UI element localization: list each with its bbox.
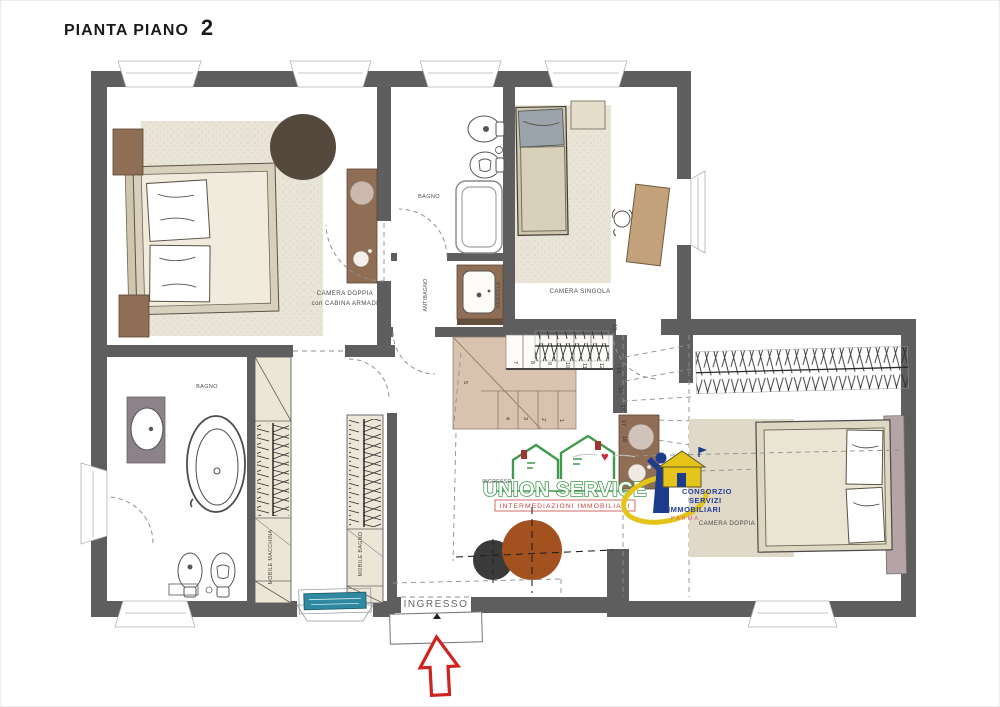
label-bagno-top: BAGNO bbox=[418, 194, 440, 200]
nightstand bbox=[571, 101, 605, 129]
teal-cabinet bbox=[297, 588, 373, 621]
entrance-arrow-icon bbox=[419, 636, 460, 696]
window-icon bbox=[420, 61, 501, 87]
floor-plan-page: PIANTA PIANO 2 bbox=[0, 0, 1000, 707]
wardrobe-strip-right bbox=[347, 415, 383, 603]
consorzio-line1: CONSORZIO bbox=[682, 487, 732, 496]
round-pouf bbox=[270, 114, 336, 180]
toilet-icon bbox=[470, 152, 504, 178]
step-number: 10 bbox=[564, 362, 570, 368]
step-number: 1 bbox=[558, 419, 564, 422]
nightstand bbox=[119, 295, 149, 337]
step-number: 5 bbox=[462, 381, 468, 384]
step-number: 3 bbox=[522, 417, 528, 420]
label-antibagno: ANTIBAGNO bbox=[423, 278, 429, 311]
window-icon bbox=[118, 61, 201, 87]
step-number: 15 bbox=[617, 387, 623, 393]
step-number: 4 bbox=[504, 417, 510, 420]
label-camera-doppia-right: CAMERA DOPPIA bbox=[699, 520, 756, 527]
label-camera-doppia-tl: CAMERA DOPPIA bbox=[317, 290, 374, 297]
union-service-tagline: INTERMEDIAZIONI IMMOBILIARI bbox=[500, 503, 631, 510]
console-cabinet bbox=[347, 169, 377, 283]
consorzio-line2: SERVIZI bbox=[689, 496, 722, 505]
double-bed bbox=[756, 416, 907, 577]
valve-icon bbox=[496, 147, 503, 154]
step-number: 16 bbox=[619, 405, 625, 411]
step-number: 7 bbox=[512, 361, 518, 364]
chair-icon bbox=[612, 209, 632, 236]
window-icon bbox=[81, 463, 107, 544]
bidet-icon bbox=[468, 116, 504, 142]
floor-plan-drawing: UNION SERVICE INTERMEDIAZIONI IMMOBILIAR… bbox=[1, 1, 1000, 707]
step-number: 18 bbox=[621, 436, 627, 442]
label-mobile-macchina: MOBILE MACCHINA bbox=[268, 530, 274, 585]
step-number: 9 bbox=[546, 362, 552, 365]
stair-closet bbox=[535, 331, 609, 361]
step-number: 13 bbox=[611, 324, 617, 330]
single-bed bbox=[516, 107, 568, 236]
double-bed bbox=[125, 163, 279, 315]
step-number: 14 bbox=[615, 367, 621, 373]
room-bagno-left bbox=[107, 397, 245, 597]
step-number: 17 bbox=[620, 420, 626, 426]
step-number: 11 bbox=[581, 363, 587, 369]
label-camera-doppia-tl-2: con CABINA ARMADI bbox=[312, 300, 379, 307]
drain-icon bbox=[206, 587, 212, 593]
shower-icon bbox=[456, 181, 502, 253]
toilet-icon bbox=[211, 553, 235, 597]
label-bagno-left: BAGNO bbox=[196, 384, 218, 390]
step-number: 8 bbox=[529, 361, 535, 364]
label-ingresso-hall: INGRESSO bbox=[482, 479, 512, 485]
bathtub-icon bbox=[187, 416, 245, 512]
union-houses-icon bbox=[513, 436, 614, 479]
label-mobile-bagno: MOBILE BAGNO bbox=[358, 532, 364, 577]
consorzio-line4: PARMA bbox=[671, 516, 700, 522]
label-mensola: MENSOLA bbox=[496, 281, 502, 309]
heart-icon: ♥ bbox=[601, 449, 609, 464]
window-icon bbox=[290, 61, 371, 87]
sink-icon bbox=[131, 408, 163, 450]
cabina-armadi bbox=[255, 351, 389, 621]
window-icon bbox=[748, 601, 837, 627]
desk bbox=[626, 184, 669, 266]
label-ingresso-entrance: INGRESSO bbox=[404, 599, 469, 610]
label-camera-singola: CAMERA SINGOLA bbox=[550, 288, 611, 295]
step-number: 2 bbox=[540, 418, 546, 421]
wardrobe-band bbox=[696, 346, 909, 394]
step-number: 12 bbox=[598, 363, 604, 369]
window-icon bbox=[545, 61, 627, 87]
window-icon bbox=[115, 601, 195, 627]
nightstand bbox=[113, 129, 143, 175]
consorzio-line3: IMMOBILIARI bbox=[668, 505, 721, 514]
